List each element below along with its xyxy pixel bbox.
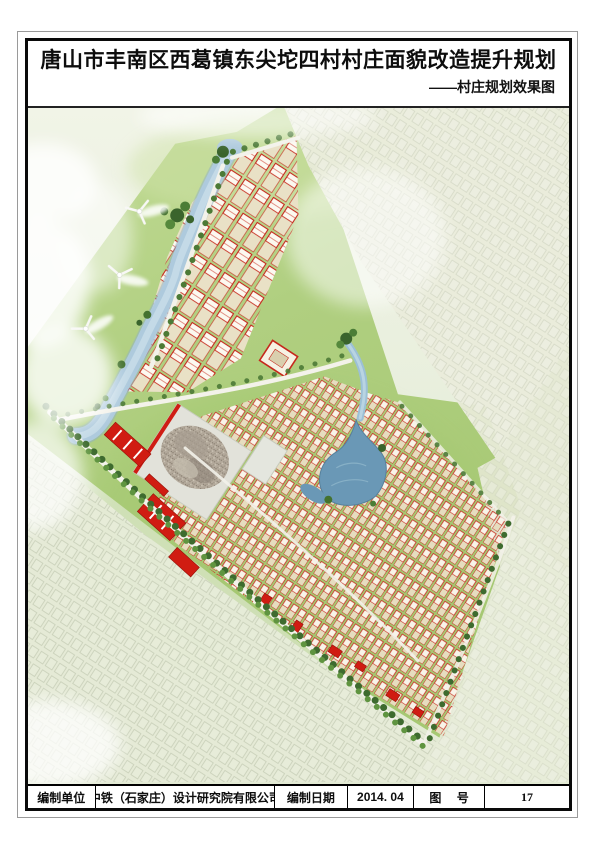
sheet-inner-frame: 唐山市丰南区西葛镇东尖坨四村村庄面貌改造提升规划 ——村庄规划效果图	[25, 38, 572, 811]
footer-label-compile-unit: 编制单位	[28, 786, 95, 808]
footer-value-compile-unit: 中铁（石家庄）设计研究院有限公司	[95, 786, 275, 808]
page-subtitle: ——村庄规划效果图	[28, 78, 569, 96]
footer-label-drawing-number: 图 号	[413, 786, 484, 808]
title-block: 唐山市丰南区西葛镇东尖坨四村村庄面貌改造提升规划 ——村庄规划效果图	[28, 41, 569, 108]
footer-value-drawing-number: 17	[484, 786, 569, 808]
footer-label-compile-date: 编制日期	[274, 786, 346, 808]
sheet-outer-frame: 唐山市丰南区西葛镇东尖坨四村村庄面貌改造提升规划 ——村庄规划效果图	[17, 31, 578, 818]
planning-poster-page: { "document": { "title": "唐山市丰南区西葛镇东尖坨四村…	[0, 0, 600, 849]
aerial-rendering-image	[28, 108, 569, 784]
page-title: 唐山市丰南区西葛镇东尖坨四村村庄面貌改造提升规划	[28, 48, 569, 74]
footer-value-compile-date: 2014. 04	[347, 786, 414, 808]
title-bar-table: 编制单位 中铁（石家庄）设计研究院有限公司 编制日期 2014. 04 图 号 …	[28, 784, 569, 808]
village-plan-rendering	[28, 108, 569, 784]
